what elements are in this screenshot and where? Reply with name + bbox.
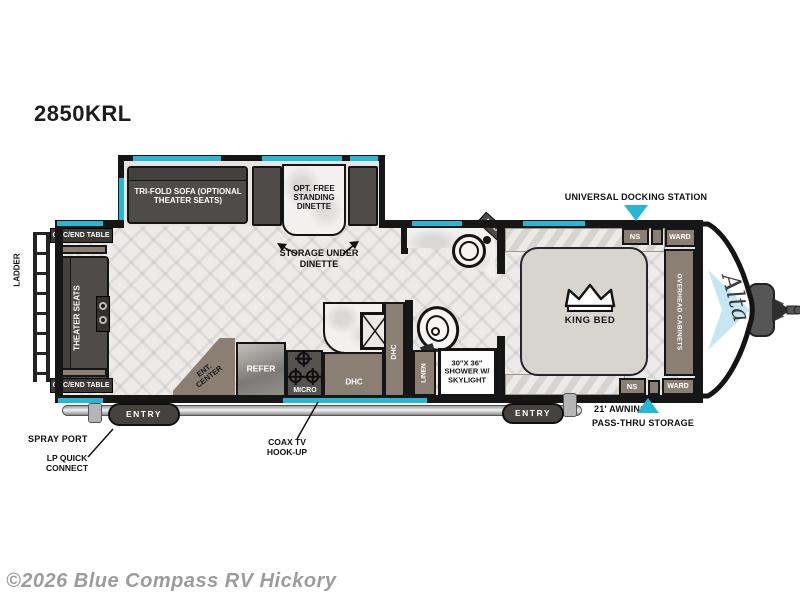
cup-holder-icon [99, 316, 107, 324]
ladder-label: LADDER [14, 253, 23, 286]
window [133, 156, 221, 161]
window [119, 178, 124, 220]
linen-label: LINEN [420, 363, 427, 383]
bed-foot-deck [505, 374, 625, 395]
crown-icon [560, 282, 620, 314]
ns-bottom-label: NS [627, 383, 637, 391]
docking-station-arrow-icon [624, 205, 648, 221]
refer-label: REFER [247, 364, 276, 373]
dhc-counter-label: DHC [345, 379, 362, 388]
bath-faucet-icon [483, 236, 491, 244]
front-cap: Alta [692, 212, 800, 408]
dinette-bench-left [252, 166, 282, 226]
spray-port-callout: SPRAY PORT [28, 434, 88, 445]
window [350, 156, 378, 161]
burner-icon [297, 352, 310, 365]
entry-door-left: ENTRY [108, 403, 180, 426]
sofa-back-cushion [129, 168, 246, 181]
shower-label: 30"X 36" SHOWER W/ SKYLIGHT [441, 360, 493, 385]
theater-seats-label: THEATER SEATS [74, 285, 83, 350]
wall-front [695, 220, 703, 403]
pass-thru-callout: PASS-THRU STORAGE [592, 418, 694, 429]
awning-bracket [88, 403, 102, 423]
dhc-tall-label: DHC [391, 344, 399, 359]
coax-callout: COAX TV HOOK-UP [256, 437, 318, 457]
lp-quick-connect-callout: LP QUICK CONNECT [38, 453, 96, 473]
cup-holder-icon [99, 302, 107, 310]
ns-top-label: NS [630, 233, 640, 241]
end-table-shelf-top [56, 245, 107, 254]
floorplan-page: 2850KRL ©2026 Blue Compass RV Hickory Al… [0, 0, 800, 600]
bedroom-wall [497, 222, 505, 274]
window [283, 398, 427, 403]
window [412, 221, 462, 226]
overhead-cabinets-label: OVERHEAD CABINETS [675, 274, 682, 351]
docking-station-callout: UNIVERSAL DOCKING STATION [565, 192, 708, 203]
window [262, 156, 342, 161]
storage-under-dinette-callout: STORAGE UNDER DINETTE [276, 248, 362, 270]
burner-icon [289, 370, 302, 383]
awning-bracket [563, 393, 577, 417]
bath-sink-bowl [459, 241, 479, 261]
cabinet-filler [648, 380, 660, 395]
king-bed-label: KING BED [565, 316, 615, 326]
entry-door-right: ENTRY [502, 403, 564, 424]
hitch-ball-icon [794, 306, 800, 314]
dinette-bench-right [348, 166, 378, 226]
micro-label: MICRO [293, 387, 316, 395]
cabinet-filler [651, 228, 663, 245]
burner-icon [306, 370, 319, 383]
bedroom-wall [497, 336, 505, 398]
sofa-label: TRI-FOLD SOFA (OPTIONAL THEATER SEATS) [129, 188, 247, 206]
end-table-shelf-bottom [56, 368, 107, 377]
wall-rear [55, 220, 63, 403]
toilet-flush [431, 327, 440, 336]
window [57, 221, 103, 226]
slideout-wall [379, 155, 385, 228]
ladder-icon [33, 232, 50, 382]
ward-top-label: WARD [669, 234, 690, 242]
window [523, 221, 585, 226]
floorplan: Alta TRI-FOLD SOFA (OPTIONAL THEATER SEA… [0, 0, 800, 600]
ward-bottom-label: WARD [667, 383, 688, 391]
bath-wall [405, 300, 413, 398]
pass-thru-arrow-icon [637, 398, 659, 413]
kitchen-counter [323, 352, 384, 398]
dinette-label: OPT. FREE STANDING DINETTE [285, 185, 343, 211]
